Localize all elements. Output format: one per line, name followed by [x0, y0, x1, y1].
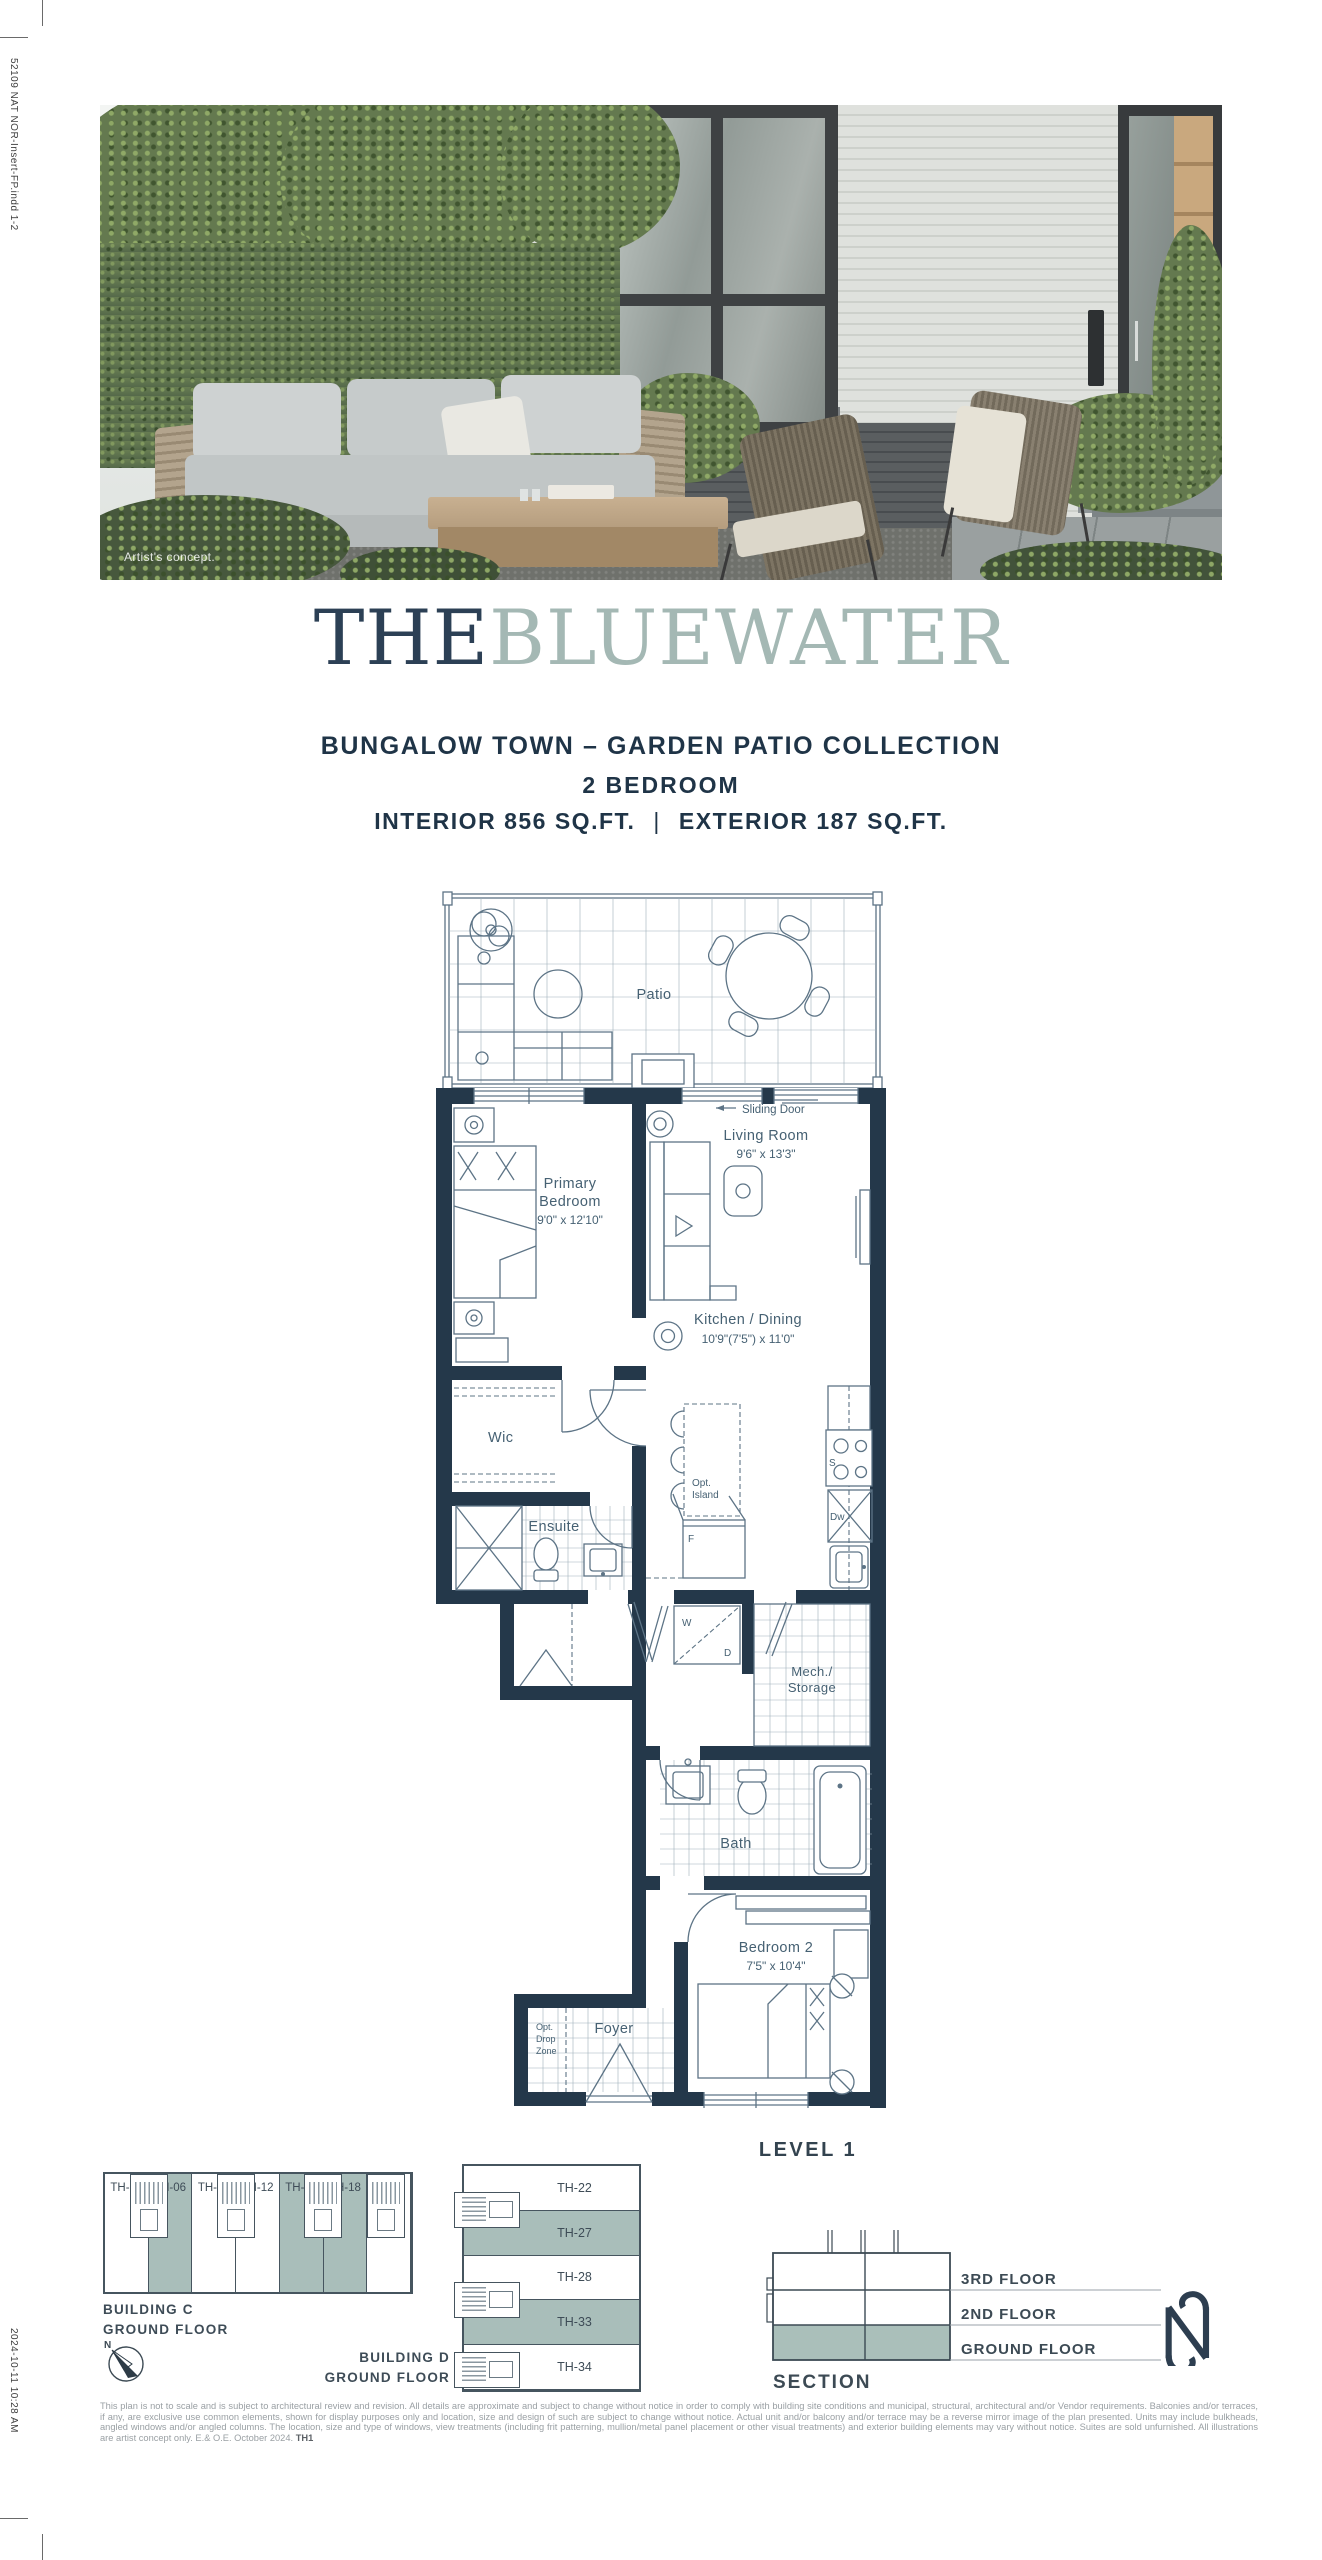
disclaimer: This plan is not to scale and is subject… [100, 2401, 1258, 2443]
ensuite: Ensuite [456, 1506, 632, 1590]
crop-mark [0, 2518, 28, 2519]
chair-leg [715, 543, 732, 580]
section-diagram: 3RD FLOOR 2ND FLOOR GROUND FLOOR SECTION [765, 2228, 1165, 2398]
bedroom-window [474, 1088, 584, 1104]
living-label: Living Room [724, 1128, 809, 1144]
crop-mark [42, 2534, 43, 2560]
bedroom-count: 2 BEDROOM [0, 772, 1322, 799]
photo-caption: Artist's concept. [124, 550, 215, 564]
stairs-icon [130, 2174, 168, 2238]
bedroom2-dims: 7'5" x 10'4" [746, 1959, 805, 1973]
floor-label-2nd: 2ND FLOOR [961, 2306, 1057, 2323]
ns-monogram-logo [1142, 2262, 1230, 2366]
brand-the: THE [314, 593, 489, 682]
ensuite-label: Ensuite [528, 1519, 579, 1535]
hero-photo: Artist's concept. [100, 105, 1222, 580]
patio-plant [470, 909, 512, 951]
building-c-label: BUILDING C GROUND FLOOR [103, 2300, 228, 2339]
stairs-icon [217, 2174, 255, 2238]
print-file-info: 52109 NAT NOR-Insert-FP.indd 1-2 [8, 58, 19, 231]
mech-label-2: Storage [788, 1680, 836, 1695]
area-separator: | [653, 808, 660, 834]
sliding-door-window [774, 1088, 858, 1104]
unit-label: TH-33 [557, 2315, 592, 2329]
print-timestamp: 2024-10-11 10:28 AM [8, 2328, 19, 2433]
floor-plan: Patio [436, 890, 886, 2175]
primary-label-1: Primary [544, 1176, 597, 1192]
stairs-icon [304, 2174, 342, 2238]
keyplan-building-c: TH-01 TH-06 TH-07 TH-12 TH-13 TH-18 TH-1… [103, 2172, 413, 2294]
stairs-icon [367, 2174, 405, 2238]
section-title: SECTION [773, 2372, 871, 2393]
island-label-1: Opt. [692, 1478, 711, 1489]
dropzone-label-1: Opt. [536, 2022, 553, 2032]
brand-name: BLUEWATER [489, 593, 1008, 682]
floor-label-ground: GROUND FLOOR [961, 2341, 1096, 2358]
living-dims: 9'6" x 13'3" [736, 1147, 795, 1161]
table-books [548, 485, 614, 499]
kitchen-label: Kitchen / Dining [694, 1312, 802, 1328]
bedroom2-window [704, 2092, 808, 2108]
bedroom2-label: Bedroom 2 [739, 1940, 814, 1956]
area-line: INTERIOR 856 SQ.FT.|EXTERIOR 187 SQ.FT. [0, 808, 1322, 835]
table-glass [532, 489, 540, 501]
patio-coffee-table [534, 970, 582, 1018]
floor-plan-svg: Patio [436, 890, 886, 2175]
floor-label-3rd: 3RD FLOOR [961, 2271, 1057, 2288]
sofa-cushion [193, 383, 341, 461]
washer-label: W [682, 1618, 692, 1629]
patio-step [632, 1054, 694, 1088]
dryer-label: D [724, 1648, 731, 1659]
chair-back [738, 412, 887, 580]
door-handle [1135, 321, 1138, 361]
dropzone-label-3: Zone [536, 2046, 557, 2056]
living-window [682, 1088, 762, 1104]
primary-label-2: Bedroom [539, 1194, 601, 1210]
patio-chair [922, 397, 1127, 547]
disclaimer-text: This plan is not to scale and is subject… [100, 2401, 1258, 2443]
foyer: Opt. Drop Zone Foyer [528, 2008, 674, 2102]
laundry: W D [646, 1606, 740, 1664]
interior-area: INTERIOR 856 SQ.FT. [374, 808, 635, 834]
wic: Wic [454, 1380, 646, 1482]
crop-mark [42, 0, 43, 26]
building-c-name: BUILDING C [103, 2300, 228, 2320]
bath-label: Bath [720, 1836, 751, 1852]
dropzone-label-2: Drop [536, 2034, 556, 2044]
compass-n-label: N [104, 2340, 111, 2351]
table-glass [520, 489, 528, 501]
stove-label: S [829, 1458, 836, 1469]
brand-title: THEBLUEWATER [0, 600, 1322, 676]
sliding-door-label: Sliding Door [742, 1104, 805, 1116]
kitchen-dims: 10'9"(7'5") x 11'0" [702, 1332, 795, 1346]
brochure-page: 52109 NAT NOR-Insert-FP.indd 1-2 2024-10… [0, 0, 1322, 2560]
level-label: LEVEL 1 [759, 2139, 857, 2161]
patio-area: Patio [443, 892, 882, 1090]
table-top [428, 497, 728, 529]
kitchen-dining: Kitchen / Dining 10'9"(7'5") x 11'0" Opt… [646, 1312, 872, 1590]
mech-label-1: Mech./ [791, 1664, 832, 1679]
fridge-label: F [688, 1534, 694, 1545]
patio-chair [692, 423, 917, 580]
compass-icon: N [98, 2336, 150, 2388]
patio-dining-set [705, 912, 832, 1039]
stairs-icon [454, 2282, 520, 2318]
stairs-icon [454, 2192, 520, 2228]
unit-label: TH-22 [557, 2181, 592, 2195]
dishwasher-label: Dw [830, 1512, 845, 1523]
living-room: Sliding Door Living Room 9'6" x 13'3" [647, 1104, 870, 1300]
walls [436, 1088, 886, 2108]
plan-code: TH1 [296, 2433, 314, 2443]
mech-storage: Mech./ Storage [754, 1602, 870, 1746]
bedroom2: Bedroom 2 7'5" x 10'4" [688, 1894, 870, 2094]
stairs-icon [454, 2352, 520, 2388]
building-d-label: BUILDING D GROUND FLOOR [290, 2348, 450, 2387]
wall-sconce [1088, 310, 1104, 386]
unit-label: TH-28 [557, 2270, 592, 2284]
building-d-name: BUILDING D [290, 2348, 450, 2368]
primary-dims: 9'0" x 12'10" [537, 1213, 603, 1227]
island-label-2: Island [692, 1490, 719, 1501]
patio-label: Patio [636, 987, 671, 1003]
building-d-floor: GROUND FLOOR [290, 2368, 450, 2388]
unit-label: TH-27 [557, 2226, 592, 2240]
crop-mark [0, 37, 28, 38]
primary-bedroom: Primary Bedroom 9'0" x 12'10" [454, 1108, 603, 1362]
keyplan-building-d: TH-22 TH-27 TH-28 TH-33 TH-34 [462, 2164, 641, 2392]
exterior-area: EXTERIOR 187 SQ.FT. [679, 808, 948, 834]
unit-label: TH-34 [557, 2360, 592, 2374]
foyer-label: Foyer [594, 2021, 633, 2037]
collection-title: BUNGALOW TOWN – GARDEN PATIO COLLECTION [0, 732, 1322, 761]
bath: Bath [660, 1759, 872, 1876]
wic-label: Wic [488, 1430, 513, 1446]
